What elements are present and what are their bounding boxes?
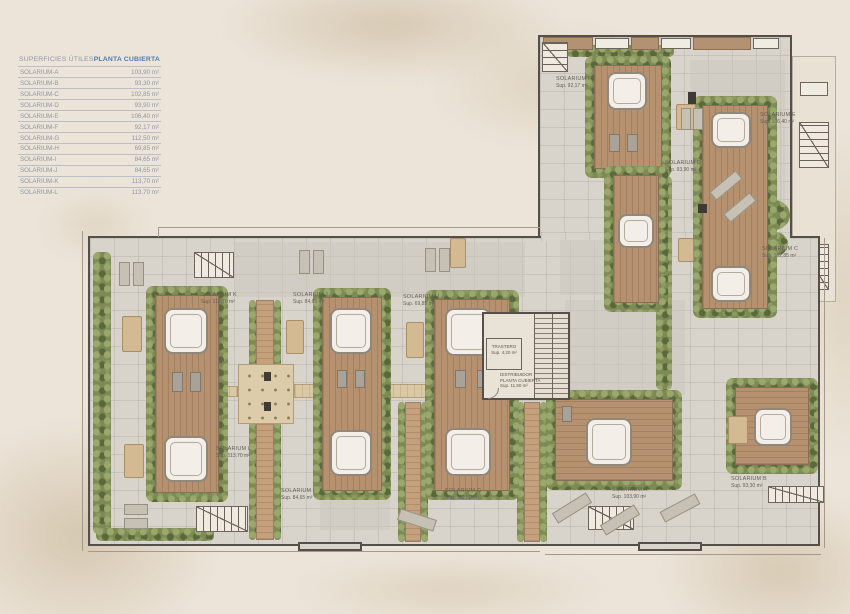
deck-cabinet — [609, 134, 620, 152]
jacuzzi — [607, 72, 647, 110]
table — [406, 322, 424, 358]
legend-row-name: SOLARIUM-C — [20, 91, 59, 98]
parapet-line — [158, 227, 540, 228]
deck-cabinet — [190, 372, 201, 392]
legend-row: SOLARIUM-J84,65 m² — [18, 165, 161, 176]
legend-row-value: 113,70 m² — [132, 178, 159, 185]
legend-row-name: SOLARIUM-L — [20, 189, 58, 196]
legend-row-value: 84,65 m² — [135, 156, 159, 163]
lounger — [124, 504, 148, 515]
jacuzzi — [754, 408, 792, 446]
lounger — [119, 262, 130, 286]
jacuzzi — [330, 308, 372, 354]
legend-row-value: 102,85 m² — [131, 91, 159, 98]
stairs-symbol — [194, 252, 234, 278]
jacuzzi — [164, 308, 208, 354]
table — [728, 416, 748, 444]
deck-cabinet — [562, 406, 572, 422]
unit-label-k: SOLARIUM K Sup. 113,70 m² — [201, 292, 257, 305]
unit-area: Sup. 93,90 m² — [665, 167, 721, 173]
unit-label-j: SOLARIUM J Sup. 84,65 m² — [293, 292, 349, 305]
skylight — [800, 82, 828, 96]
legend-row: SOLARIUM-I84,65 m² — [18, 154, 161, 165]
jacuzzi — [330, 430, 372, 476]
unit-name: SOLARIUM K — [201, 292, 257, 299]
parapet-line — [824, 238, 825, 548]
legend-table: SUPERFICIES ÚTILES PLANTA CUBIERTA SOLAR… — [18, 56, 161, 198]
pergola-post — [264, 372, 271, 381]
parapet-line — [82, 231, 83, 551]
jacuzzi — [618, 214, 654, 248]
room-area: Sup. 4,20 m² — [488, 350, 520, 356]
lounger — [124, 518, 148, 529]
legend-row-value: 93,90 m² — [135, 102, 159, 109]
roof-plan-sheet: SUPERFICIES ÚTILES PLANTA CUBIERTA SOLAR… — [0, 0, 850, 614]
pergola-post — [264, 402, 271, 411]
unit-area: Sup. 113,70 m² — [216, 453, 272, 459]
lounger — [693, 108, 703, 130]
unit-name: SOLARIUM F — [556, 76, 612, 83]
deck-cabinet — [337, 370, 347, 388]
room-name: TRASTERO — [488, 344, 520, 350]
planter-box — [693, 37, 751, 50]
unit-name: SOLARIUM A — [612, 487, 668, 494]
unit-area: Sup. 113,70 m² — [201, 299, 257, 305]
legend-row-name: SOLARIUM-J — [20, 167, 57, 174]
roof-fixture — [698, 204, 707, 213]
deck-cabinet — [172, 372, 183, 392]
unit-name: SOLARIUM I — [281, 488, 337, 495]
balcony-bump — [638, 542, 702, 551]
unit-name: SOLARIUM C — [762, 246, 818, 253]
legend-header: SUPERFICIES ÚTILES PLANTA CUBIERTA — [18, 56, 161, 66]
jacuzzi — [164, 436, 208, 482]
unit-name: SOLARIUM G — [445, 488, 501, 495]
unit-label-i: SOLARIUM I Sup. 84,65 m² — [281, 488, 337, 501]
table — [678, 238, 694, 262]
legend-row-name: SOLARIUM-D — [20, 102, 59, 109]
table — [122, 316, 142, 352]
jacuzzi — [711, 266, 751, 302]
legend-row-value: 106,40 m² — [131, 113, 159, 120]
jacuzzi — [445, 428, 491, 476]
distribuidor-label: DISTRIBUIDOR PLANTA CUBIERTA Sup. 11,90 … — [500, 372, 558, 389]
unit-label-a: SOLARIUM A Sup. 103,90 m² — [612, 487, 668, 500]
deck-cabinet — [627, 134, 638, 152]
legend-plan-name: PLANTA CUBIERTA — [94, 56, 160, 63]
unit-solarium-d — [604, 166, 668, 312]
unit-area: Sup. 92,17 m² — [556, 83, 612, 89]
unit-label-g: SOLARIUM G Sup. 112,50 m² — [445, 488, 501, 501]
legend-row: SOLARIUM-B93,30 m² — [18, 77, 161, 88]
parapet-line — [158, 227, 159, 237]
watercolor-blotch — [220, 0, 560, 80]
unit-label-b: SOLARIUM B Sup. 93,30 m² — [731, 476, 787, 489]
trastero-label: TRASTERO Sup. 4,20 m² — [488, 344, 520, 355]
legend-row: SOLARIUM-F92,17 m² — [18, 121, 161, 132]
table — [124, 444, 144, 478]
unit-name: SOLARIUM D — [665, 160, 721, 167]
unit-area: Sup. 102,85 m² — [762, 253, 818, 259]
legend-row-value: 103,90 m² — [131, 69, 159, 76]
legend-row: SOLARIUM-A103,90 m² — [18, 66, 161, 77]
unit-area: Sup. 93,30 m² — [731, 483, 787, 489]
unit-solarium-a — [546, 390, 682, 490]
skylight — [595, 38, 629, 49]
lounger — [313, 250, 324, 274]
legend-row-value: 69,85 m² — [135, 145, 159, 152]
unit-label-c: SOLARIUM C Sup. 102,85 m² — [762, 246, 818, 259]
unit-area: Sup. 106,40 m² — [760, 119, 816, 125]
unit-area: Sup. 84,65 m² — [281, 495, 337, 501]
planter-box — [631, 37, 659, 50]
legend-row-name: SOLARIUM-I — [20, 156, 56, 163]
stairs-symbol — [542, 42, 568, 72]
legend-row-name: SOLARIUM-H — [20, 145, 59, 152]
unit-label-d: SOLARIUM D Sup. 93,90 m² — [665, 160, 721, 173]
unit-label-f: SOLARIUM F Sup. 92,17 m² — [556, 76, 612, 89]
legend-row-name: SOLARIUM-B — [20, 80, 59, 87]
legend-row: SOLARIUM-C102,85 m² — [18, 88, 161, 99]
legend-row: SOLARIUM-L113,70 m² — [18, 187, 161, 198]
hedge — [93, 252, 111, 534]
legend-row: SOLARIUM-K113,70 m² — [18, 176, 161, 187]
parapet-line — [88, 551, 540, 552]
skylight — [661, 38, 691, 49]
legend-title: SUPERFICIES ÚTILES — [19, 56, 94, 63]
unit-name: SOLARIUM E — [760, 112, 816, 119]
unit-area: Sup. 112,50 m² — [445, 495, 501, 501]
deck-cabinet — [455, 370, 466, 388]
unit-name: SOLARIUM H — [403, 294, 459, 301]
legend-row-value: 92,17 m² — [135, 124, 159, 131]
legend-row-name: SOLARIUM-E — [20, 113, 59, 120]
unit-solarium-j-i — [313, 288, 391, 500]
jacuzzi — [586, 418, 632, 466]
unit-label-e: SOLARIUM E Sup. 106,40 m² — [760, 112, 816, 125]
stairs-symbol — [799, 122, 829, 168]
unit-area: Sup. 84,65 m² — [293, 299, 349, 305]
unit-solarium-f — [585, 56, 671, 178]
unit-solarium-k-l — [146, 286, 228, 502]
table — [450, 238, 466, 268]
roof-fixture — [688, 92, 696, 104]
lounger — [439, 248, 450, 272]
legend-row-value: 112,50 m² — [132, 135, 159, 142]
watercolor-blotch — [290, 555, 610, 614]
lounger — [299, 250, 310, 274]
unit-area: Sup. 103,90 m² — [612, 494, 668, 500]
legend-row-value: 93,30 m² — [135, 80, 159, 87]
table — [286, 320, 304, 354]
lounger — [133, 262, 144, 286]
unit-name: SOLARIUM B — [731, 476, 787, 483]
room-area: Sup. 11,90 m² — [500, 383, 558, 389]
skylight — [753, 38, 779, 49]
unit-name: SOLARIUM L — [216, 446, 272, 453]
unit-name: SOLARIUM J — [293, 292, 349, 299]
legend-row-value: 113,70 m² — [132, 189, 159, 196]
lounger — [425, 248, 436, 272]
stairs-symbol — [196, 506, 248, 532]
legend-row: SOLARIUM-H69,85 m² — [18, 143, 161, 154]
unit-area: Sup. 69,85 m² — [403, 301, 459, 307]
deck-cabinet — [355, 370, 365, 388]
legend-row: SOLARIUM-E106,40 m² — [18, 110, 161, 121]
unit-label-h: SOLARIUM H Sup. 69,85 m² — [403, 294, 459, 307]
legend-row-name: SOLARIUM-K — [20, 178, 59, 185]
legend-row-name: SOLARIUM-F — [20, 124, 58, 131]
legend-row-name: SOLARIUM-A — [20, 69, 59, 76]
legend-row-value: 84,65 m² — [135, 167, 159, 174]
legend-row-name: SOLARIUM-G — [20, 135, 59, 142]
lounger — [681, 108, 691, 130]
balcony-bump — [298, 542, 362, 551]
legend-row: SOLARIUM-G112,50 m² — [18, 132, 161, 143]
parapet-line — [545, 554, 821, 555]
jacuzzi — [711, 112, 751, 148]
legend-row: SOLARIUM-D93,90 m² — [18, 99, 161, 110]
boardwalk — [524, 402, 540, 542]
unit-label-l: SOLARIUM L Sup. 113,70 m² — [216, 446, 272, 459]
